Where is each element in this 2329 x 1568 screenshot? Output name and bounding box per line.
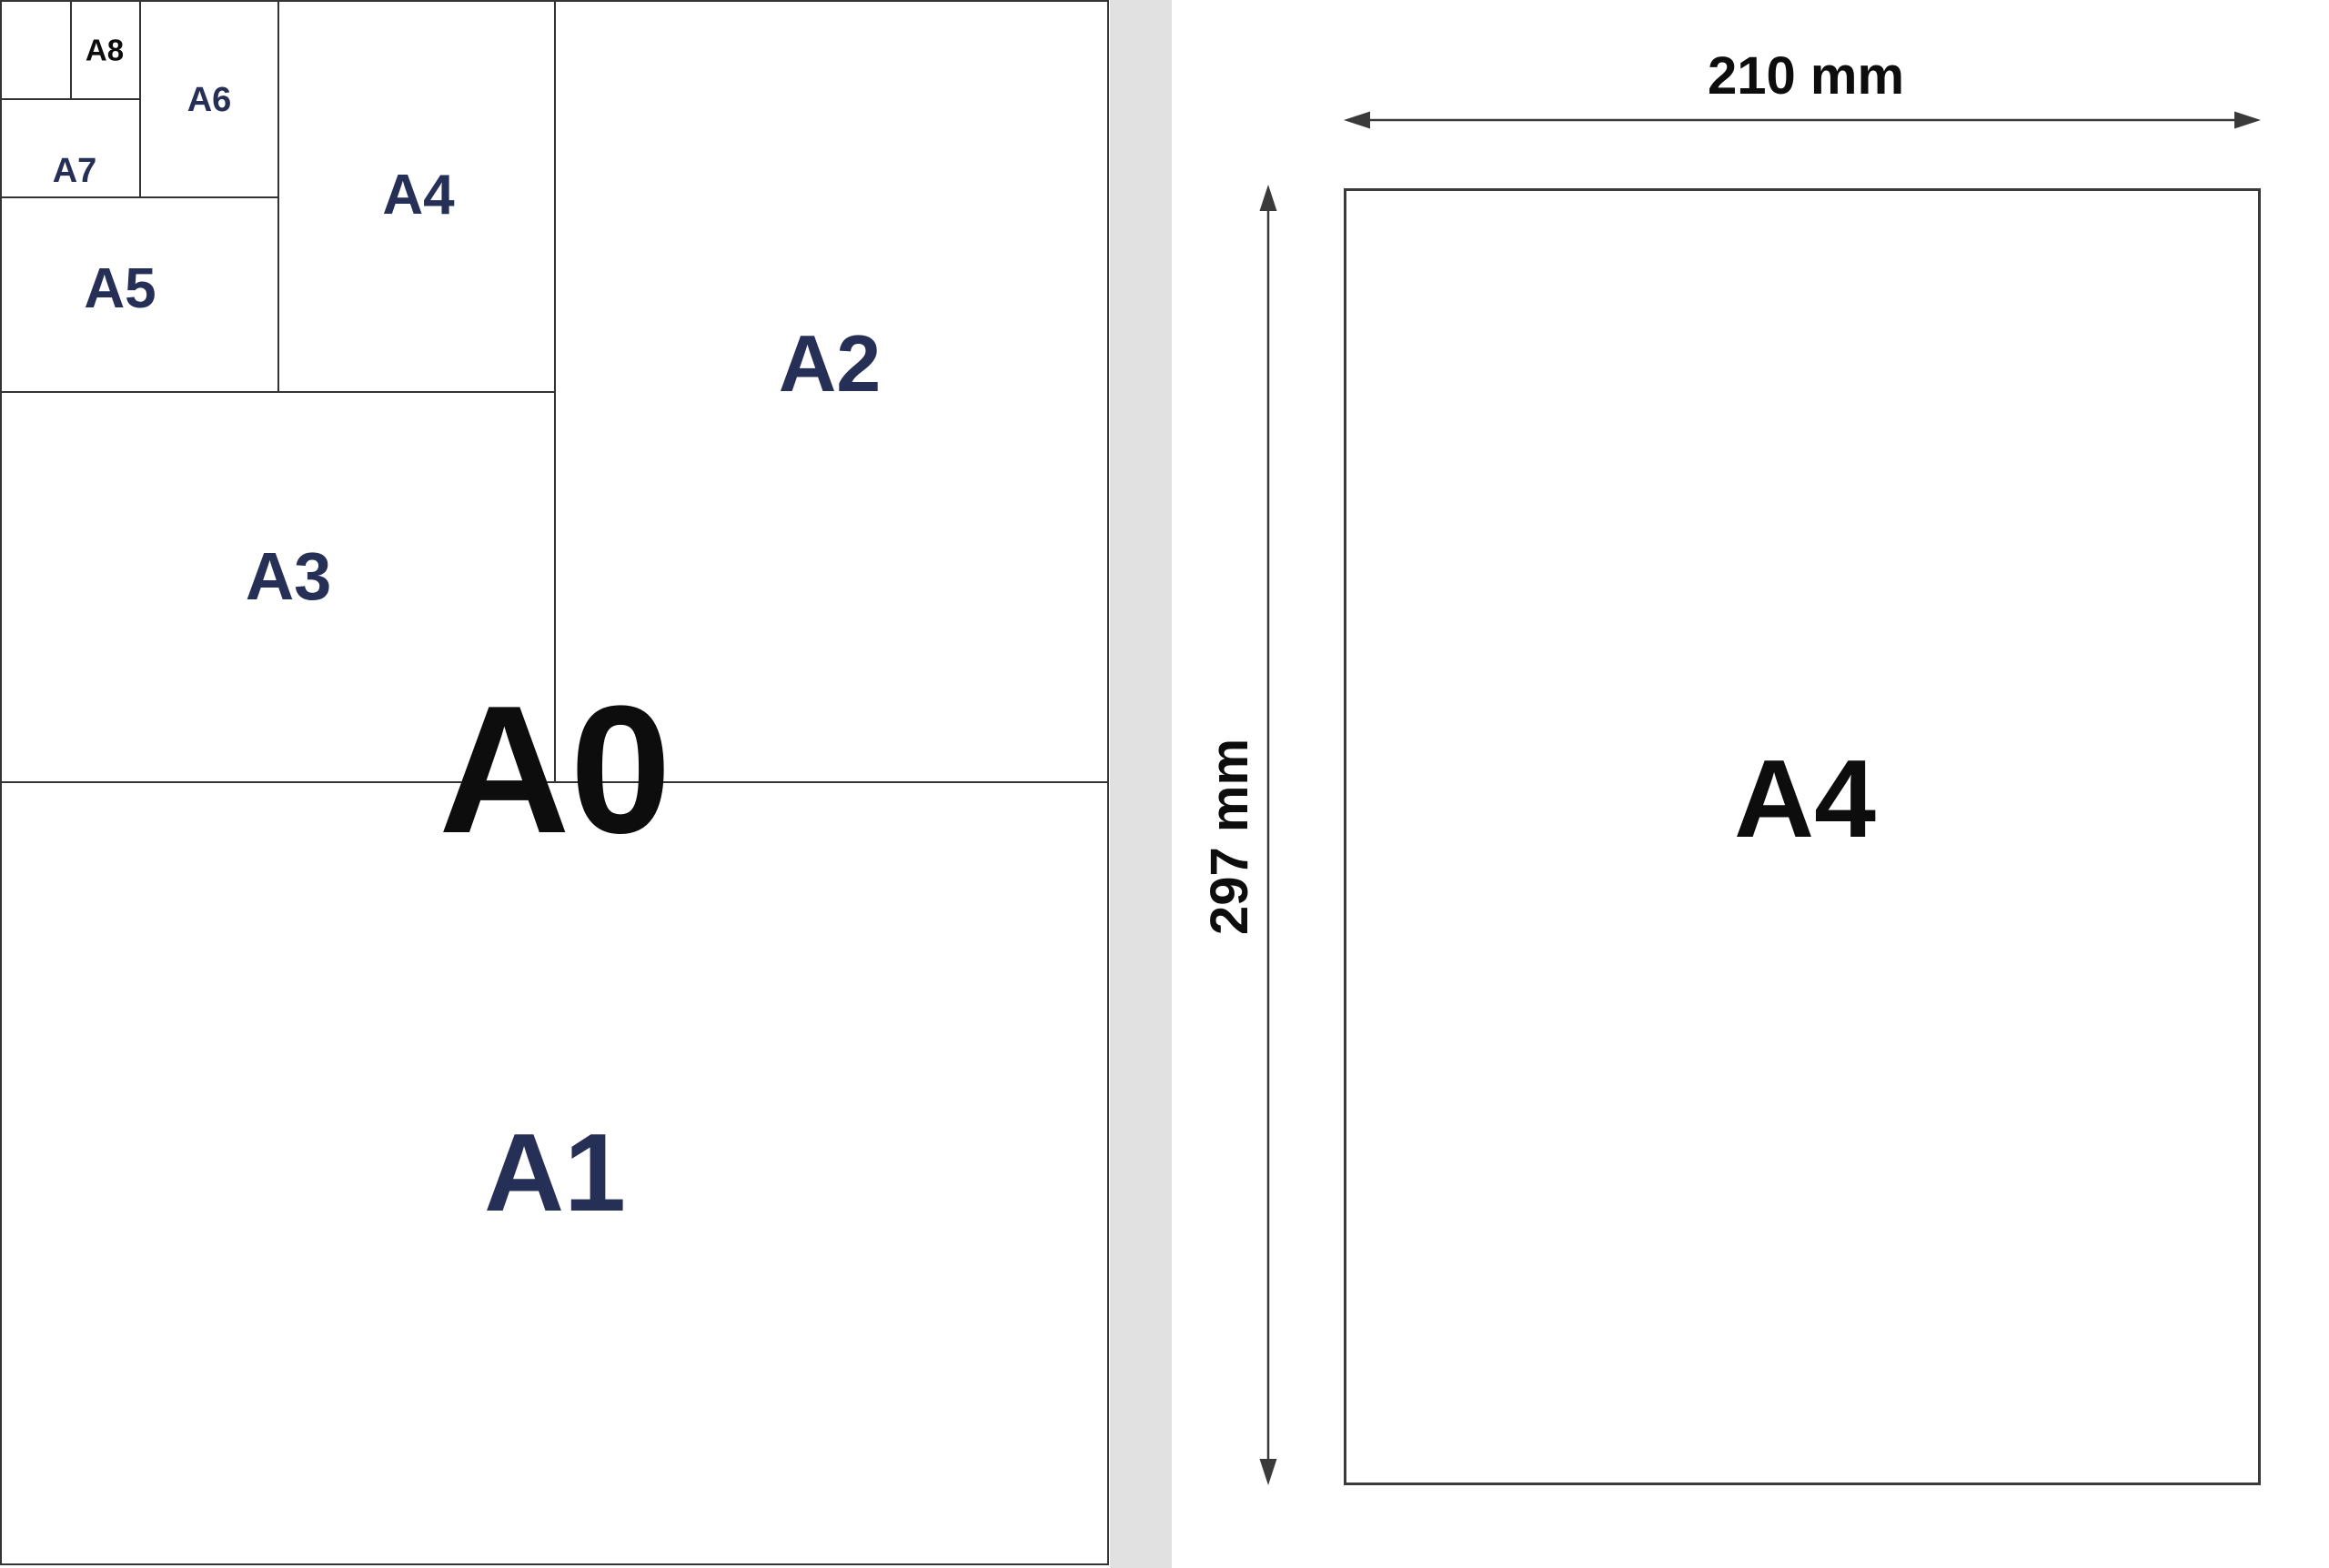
label-a8: A8 [86,35,124,65]
label-a0: A0 [439,679,671,861]
a-series-diagram: A0 A1 A2 A3 A4 A5 A6 A7 A8 [0,0,1109,1565]
height-dimension-label: 297 mm [1204,739,1256,935]
label-a3: A3 [246,543,332,610]
a4-page-outline: A4 [1344,188,2261,1485]
a4-page-label: A4 [1734,743,1876,854]
paper-sizes-infographic: A0 A1 A2 A3 A4 A5 A6 A7 A8 A4 210 mm 297… [0,0,2329,1568]
width-dimension-label: 210 mm [1708,50,1904,103]
label-a1: A1 [484,1117,626,1228]
label-a5: A5 [84,261,156,317]
panel-divider [1110,0,1172,1568]
width-dimension-arrow-icon [1342,106,2263,134]
a8-left-line [70,2,72,99]
label-a2: A2 [779,324,882,404]
label-a7: A7 [53,154,97,188]
label-a4: A4 [382,167,454,224]
label-a6: A6 [187,83,232,117]
